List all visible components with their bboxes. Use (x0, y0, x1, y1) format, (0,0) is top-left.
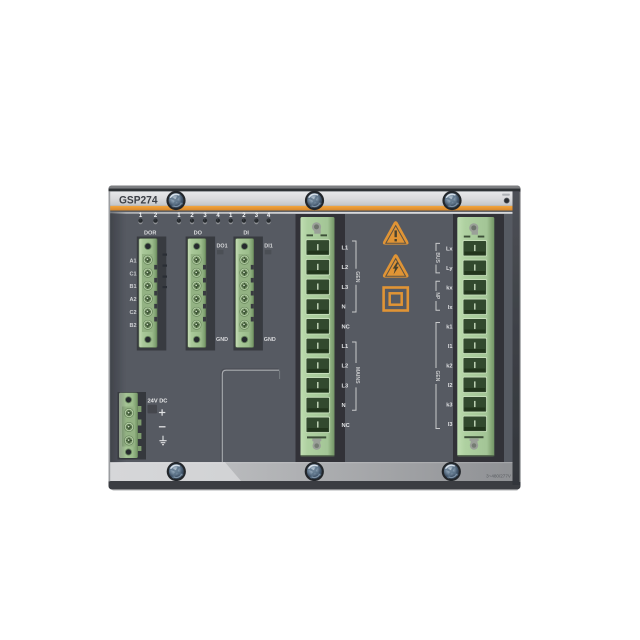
svg-text:NC: NC (342, 423, 350, 429)
svg-text:k1: k1 (446, 324, 452, 330)
svg-text:L3: L3 (342, 285, 349, 291)
svg-text:DOR: DOR (144, 231, 156, 237)
svg-text:kx: kx (446, 285, 453, 291)
svg-text:MAINS: MAINS (354, 367, 360, 384)
svg-text:24V DC: 24V DC (148, 398, 168, 404)
svg-text:BUS: BUS (434, 252, 440, 263)
svg-text:GSP274: GSP274 (119, 195, 158, 207)
svg-text:DI1: DI1 (264, 244, 272, 250)
svg-text:l3: l3 (448, 422, 453, 428)
svg-text:L3: L3 (342, 383, 349, 389)
svg-text:C1: C1 (129, 271, 136, 277)
svg-text:NC: NC (342, 324, 350, 330)
svg-text:l2: l2 (448, 383, 453, 389)
svg-text:B2: B2 (129, 323, 136, 329)
svg-text:DO1: DO1 (217, 244, 228, 250)
svg-text:k3: k3 (446, 402, 452, 408)
svg-text:L2: L2 (342, 265, 349, 271)
svg-text:Ly: Ly (446, 266, 453, 272)
svg-text:NP: NP (434, 292, 440, 300)
svg-text:3~480/277V: 3~480/277V (486, 474, 512, 479)
svg-text:GND: GND (216, 337, 228, 343)
svg-text:A2: A2 (129, 297, 136, 303)
svg-text:B1: B1 (129, 284, 136, 290)
svg-text:GEN: GEN (354, 271, 360, 282)
svg-text:N: N (342, 305, 346, 311)
svg-text:N: N (342, 403, 346, 409)
svg-text:k2: k2 (446, 363, 452, 369)
svg-text:Lx: Lx (446, 246, 453, 252)
svg-text:GEN: GEN (434, 370, 440, 381)
svg-text:C2: C2 (129, 310, 136, 316)
svg-text:L1: L1 (342, 344, 349, 350)
svg-text:l1: l1 (448, 344, 453, 350)
svg-text:DO: DO (194, 231, 203, 237)
svg-text:L2: L2 (342, 364, 349, 370)
svg-text:GND: GND (264, 337, 276, 343)
svg-text:DI: DI (243, 231, 249, 237)
svg-text:L1: L1 (342, 246, 349, 252)
svg-text:A1: A1 (129, 258, 136, 264)
